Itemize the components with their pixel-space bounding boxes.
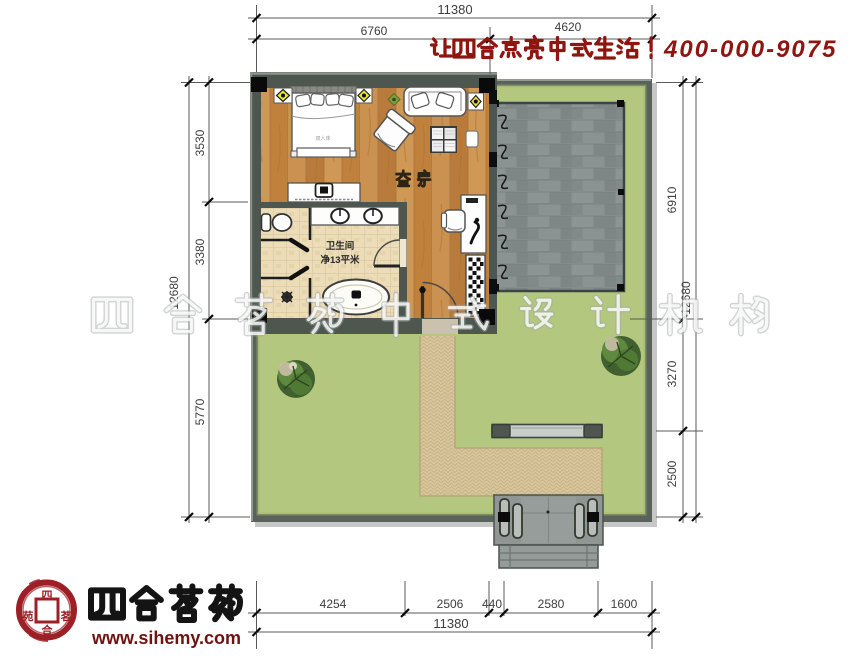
svg-text:1600: 1600 bbox=[611, 597, 638, 611]
svg-text:双人床: 双人床 bbox=[315, 135, 330, 142]
svg-text:5770: 5770 bbox=[193, 398, 207, 425]
svg-text:3530: 3530 bbox=[193, 129, 207, 156]
svg-text:4254: 4254 bbox=[320, 597, 347, 611]
svg-text:3270: 3270 bbox=[665, 360, 679, 387]
svg-text:净13平米: 净13平米 bbox=[320, 254, 360, 266]
svg-text:合: 合 bbox=[42, 623, 54, 637]
svg-text:卫生间: 卫生间 bbox=[326, 240, 355, 252]
svg-text:3380: 3380 bbox=[193, 238, 207, 265]
svg-text:11380: 11380 bbox=[433, 616, 468, 631]
svg-text:2506: 2506 bbox=[437, 597, 464, 611]
svg-text:2580: 2580 bbox=[538, 597, 565, 611]
svg-text:www.sihemy.com: www.sihemy.com bbox=[91, 628, 241, 648]
svg-text:440: 440 bbox=[482, 597, 502, 611]
svg-text:6760: 6760 bbox=[361, 24, 388, 38]
svg-text:茗: 茗 bbox=[61, 609, 72, 623]
svg-text:2500: 2500 bbox=[665, 460, 679, 487]
svg-text:苑: 苑 bbox=[22, 609, 34, 623]
svg-text:6910: 6910 bbox=[665, 186, 679, 213]
svg-text:400-000-9075: 400-000-9075 bbox=[663, 36, 837, 63]
svg-text:11380: 11380 bbox=[437, 2, 472, 17]
svg-text:四: 四 bbox=[42, 589, 53, 602]
svg-text:4620: 4620 bbox=[555, 20, 582, 34]
